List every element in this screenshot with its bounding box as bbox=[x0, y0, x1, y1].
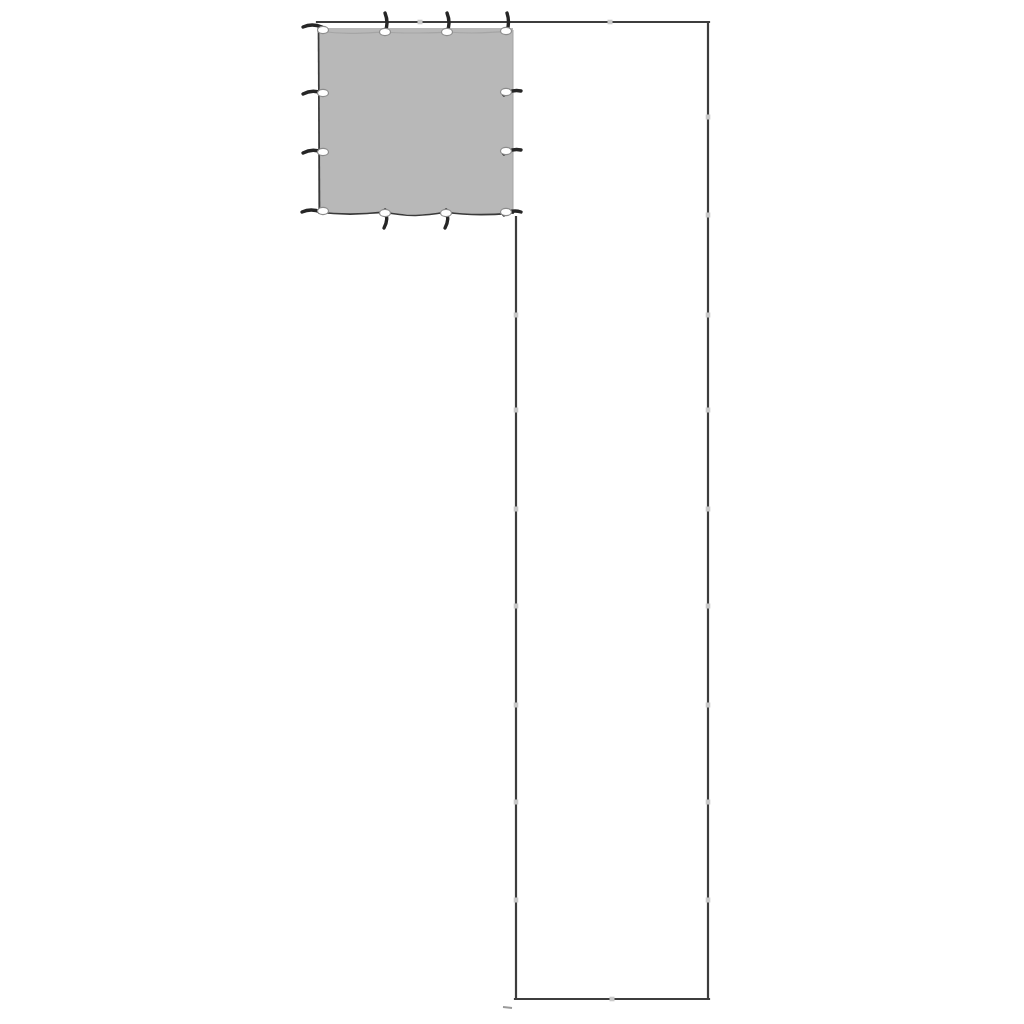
foot-mark bbox=[503, 1007, 512, 1008]
pole-joint bbox=[514, 898, 519, 903]
pole-joint bbox=[706, 115, 711, 120]
bar-joint bbox=[418, 20, 423, 25]
grommet bbox=[501, 27, 512, 34]
pole-joint bbox=[514, 604, 519, 609]
grommet bbox=[441, 209, 452, 216]
pole-joint bbox=[706, 703, 711, 708]
pole-joint bbox=[514, 507, 519, 512]
grommet bbox=[501, 208, 512, 215]
grommet bbox=[380, 28, 391, 35]
grommet bbox=[380, 209, 391, 216]
pole-joint bbox=[514, 408, 519, 413]
grommet bbox=[501, 147, 512, 154]
pole-joint bbox=[514, 313, 519, 318]
pole-joint bbox=[706, 604, 711, 609]
illustration-svg bbox=[0, 0, 1024, 1024]
tarp-fabric bbox=[318, 28, 513, 214]
product-illustration bbox=[0, 0, 1024, 1024]
pole-joint bbox=[706, 213, 711, 218]
pole-joint bbox=[514, 800, 519, 805]
grommet bbox=[318, 26, 329, 33]
bar-joint bbox=[610, 997, 615, 1002]
bar-joint bbox=[608, 20, 613, 25]
pole-joint bbox=[706, 507, 711, 512]
grommet bbox=[318, 89, 329, 96]
hook-top-left bbox=[303, 25, 322, 27]
grommet bbox=[318, 207, 329, 214]
pole-joint bbox=[706, 898, 711, 903]
grommet bbox=[318, 148, 329, 155]
tarp bbox=[317, 26, 514, 215]
grommet bbox=[442, 28, 453, 35]
grommet bbox=[501, 88, 512, 95]
pole-joint bbox=[706, 313, 711, 318]
pole-joint bbox=[706, 800, 711, 805]
pole-joint bbox=[706, 408, 711, 413]
tarp-left-edge bbox=[319, 26, 320, 214]
pole-joint bbox=[514, 703, 519, 708]
